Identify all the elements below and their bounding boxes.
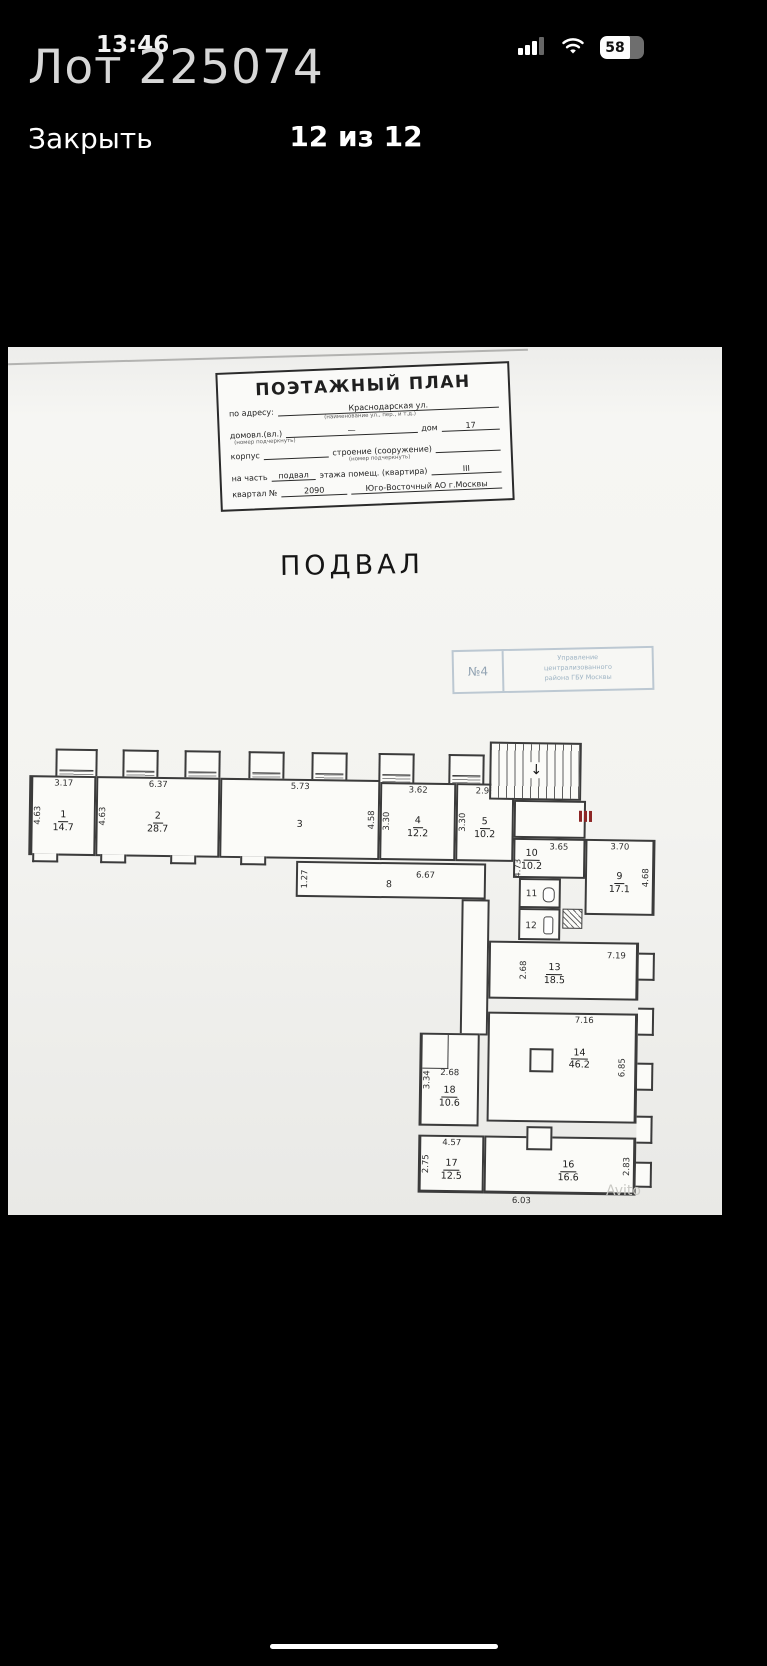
document-title: ПОЭТАЖНЫЙ ПЛАН: [228, 371, 499, 402]
sink-fixture: [543, 916, 553, 934]
pilaster: [170, 855, 196, 864]
viewer-nav: Закрыть 12 из 12: [0, 118, 767, 162]
room-label: 114.7: [52, 809, 73, 834]
room-2: 6.37 4.63 228.7: [95, 776, 220, 858]
window-bay: [55, 749, 97, 779]
room-14: 7.16 1446.2 6.85: [487, 1012, 639, 1124]
app-screen: 13:46 Лот 225074 58 Закрыть 12 из 12: [0, 0, 767, 1666]
part-value: подвал: [271, 470, 315, 482]
address-label: по адресу:: [229, 408, 274, 419]
dim-label: 6.37: [98, 780, 218, 790]
column: [526, 1126, 552, 1150]
kvartal-label: квартал №: [232, 489, 277, 500]
dim-label: 4.63: [34, 806, 43, 825]
registry-stamp: №4 Управление централизованного района Г…: [452, 646, 655, 694]
section-marker-iii: [579, 811, 594, 822]
floor-plan-drawing: 3.17 4.63 114.7 6.37 4.63 228.7 5.73 4.5…: [13, 729, 674, 1208]
room-label: 1810.6: [439, 1085, 460, 1110]
photo-counter: 12 из 12: [0, 120, 712, 153]
dim-label: 4.68: [642, 868, 651, 887]
dim-label: 7.16: [533, 1016, 635, 1026]
room-11-wc: 11: [519, 878, 561, 909]
dim-label: 7.19: [607, 952, 626, 961]
window-bay: [122, 749, 158, 778]
dim-label: 3.30: [383, 812, 392, 831]
room-13: 2.68 1318.5 7.19: [488, 941, 639, 1001]
window-bay: [248, 751, 284, 780]
room-label: 1446.2: [569, 1047, 590, 1072]
stair-direction-arrow: ↓: [529, 762, 543, 778]
floor-plan-photo[interactable]: ПОЭТАЖНЫЙ ПЛАН по адресу: Краснодарская …: [8, 347, 722, 1215]
dim-label: 6.67: [416, 872, 435, 881]
lot-title: Лот 225074: [28, 40, 324, 95]
floor-label: ПОДВАЛ: [280, 549, 424, 582]
title-block: ПОЭТАЖНЫЙ ПЛАН по адресу: Краснодарская …: [215, 361, 514, 512]
room-label: 1616.6: [557, 1159, 578, 1184]
pilaster: [32, 853, 58, 862]
part-mid: этажа помещ. (квартира): [319, 467, 427, 480]
wifi-icon: [560, 36, 586, 59]
korpus-blank: [264, 449, 329, 460]
dim-label: 5.73: [222, 782, 378, 793]
dim-label: 3.34: [423, 1070, 432, 1089]
corridor-8: 1.27 8 6.67: [296, 861, 486, 900]
dim-label: 3.70: [587, 843, 652, 852]
home-indicator[interactable]: [270, 1644, 498, 1649]
closet-corner: [422, 1035, 448, 1069]
battery-indicator: 58: [600, 36, 644, 59]
window-bay: [639, 953, 655, 981]
pilaster: [240, 856, 266, 865]
window-bay: [637, 1063, 653, 1091]
column: [529, 1048, 553, 1072]
dim-label: 2.68: [520, 961, 529, 980]
house-word: дом: [421, 423, 438, 433]
window-bay: [636, 1116, 652, 1144]
room-label: 510.2: [474, 816, 495, 841]
shaft-hatched: [562, 909, 582, 929]
window-bay: [184, 750, 220, 779]
dim-label: 2.75: [422, 1154, 431, 1173]
room-label: 917.1: [609, 871, 630, 896]
korpus-label: корпус: [231, 451, 261, 461]
dim-label: 2.83: [623, 1156, 632, 1175]
room-label: 228.7: [147, 810, 168, 835]
dim-label: 3.62: [382, 786, 454, 796]
status-icons: 58: [518, 36, 644, 59]
dim-label: 6.85: [618, 1058, 627, 1077]
staircase: ↓: [489, 742, 582, 801]
toilet-fixture: [543, 887, 555, 902]
room-18: 2.68 3.34 1810.6: [419, 1033, 480, 1127]
room-1: 3.17 4.63 114.7: [28, 775, 96, 856]
district-value: Юго-Восточный АО г.Москвы: [351, 479, 502, 495]
room-3: 5.73 4.58 3: [219, 778, 380, 860]
dim-label: 3.65: [549, 843, 568, 852]
room-17: 4.57 2.75 1712.5: [418, 1135, 485, 1194]
dim-label: 4.58: [368, 810, 377, 829]
dim-label: 4.63: [99, 807, 108, 826]
site-watermark: Avito: [606, 1183, 641, 1199]
kvartal-value: 2090: [281, 485, 347, 498]
stamp-text: Управление централизованного района ГБУ …: [504, 648, 653, 691]
dim-label: 4.57: [421, 1139, 482, 1148]
part-label: на часть: [231, 473, 267, 483]
part-number: III: [431, 463, 501, 476]
room-label: 412.2: [407, 815, 428, 840]
room-4: 3.62 3.30 412.2: [379, 782, 456, 861]
window-bay: [448, 754, 484, 783]
dim-label: 1.27: [301, 869, 310, 888]
room-label: 1010.2: [521, 847, 542, 872]
room-number: 8: [386, 880, 392, 890]
cellular-signal-icon: [518, 37, 546, 59]
room-number: 12: [525, 922, 537, 931]
stair-landing: [514, 800, 587, 839]
window-bay: [638, 1008, 654, 1036]
room-label: 1318.5: [544, 962, 565, 987]
room-9: 3.70 4.68 917.1: [584, 839, 655, 916]
pilaster: [100, 854, 126, 863]
room-label: 1712.5: [441, 1157, 462, 1182]
window-bay: [311, 752, 347, 781]
battery-percent: 58: [600, 36, 630, 59]
window-bay: [378, 753, 414, 782]
dim-label: 6.03: [512, 1196, 531, 1205]
dim-label: 3.17: [33, 779, 94, 788]
room-12-wc: 12: [518, 908, 560, 941]
stamp-number: №4: [454, 651, 505, 692]
room-number: 11: [526, 890, 538, 899]
passage: [460, 899, 490, 1035]
room-label: 3: [295, 819, 305, 831]
room-10: 3.65 4.73 1010.2: [513, 838, 586, 879]
dim-label: 3.30: [459, 813, 468, 832]
